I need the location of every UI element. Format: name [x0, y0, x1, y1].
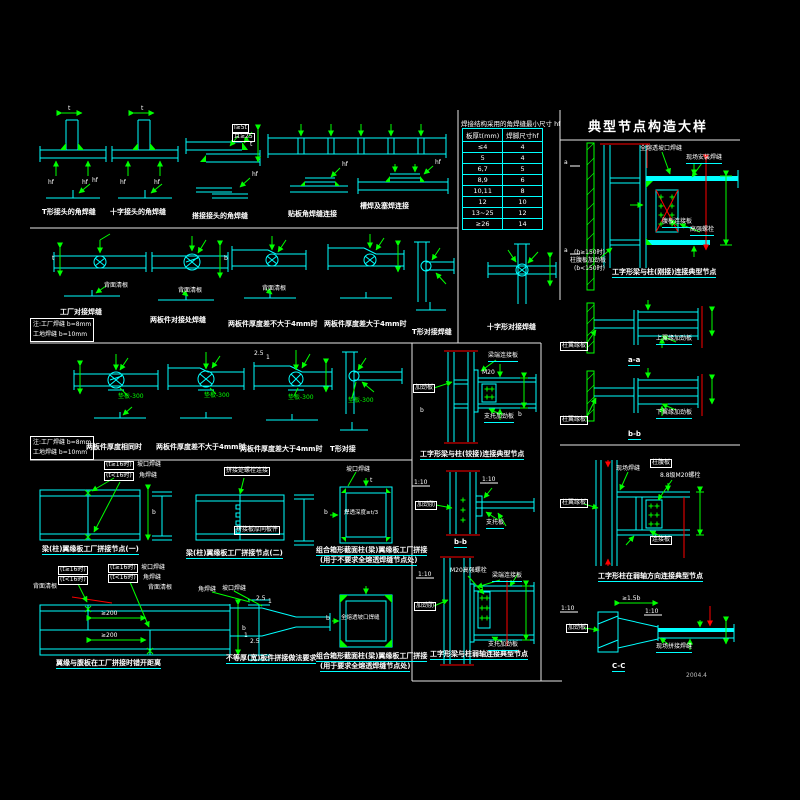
table-cell: 6 [503, 175, 542, 186]
label-backing-bar: 垫板-300 [288, 395, 314, 402]
dim-ge200: ≥200 [101, 610, 118, 617]
caption-equal-thick: 两板件厚度相同时 [86, 444, 142, 451]
label-seat-plate: 支托板 [486, 520, 504, 529]
dim-b: b [324, 509, 328, 516]
dim-hf: hf [92, 177, 99, 184]
label-hs-bolt: 高强螺栓 [690, 227, 714, 236]
label-fillet-weld: 角焊缝 [139, 473, 157, 480]
dim-slope25: 2.5 [254, 350, 264, 357]
dim-b: b [152, 509, 156, 516]
dim-t: t [68, 105, 71, 112]
label-web-plate: 腹板连接板 [662, 219, 692, 228]
section-label-cc: C-C [612, 663, 625, 672]
dim-ge15b: ≥1.5b [622, 595, 641, 602]
table-cell: 6,7 [463, 164, 503, 175]
dim-b: b [518, 411, 522, 418]
caption-plug-weld: 槽焊及塞焊连接 [360, 203, 409, 210]
detail-cross-joint-fillet-weld: t hf hf [112, 105, 178, 198]
table-header-thickness: 板厚t(mm) [463, 129, 503, 142]
section-a-a [586, 300, 712, 353]
label-stiff-rib: 加劲肋 [414, 602, 436, 611]
weld-table-body: ≤44546,758,9610,118121013~2512≥2614 [463, 142, 543, 230]
caption-box-splice-2a: 组合箱形截面柱(梁)翼缘板工厂拼接 [316, 653, 427, 662]
caption-lap-joint: 搭接接头的角焊缝 [192, 213, 248, 220]
caption-step-gt4-b: 两板件厚度差大于4mm时 [240, 446, 322, 453]
detail-t-butt-weld [414, 242, 454, 310]
caption-cross-butt: 十字形对接焊缝 [487, 324, 536, 331]
label-groove-weld: 坡口焊缝 [137, 462, 161, 469]
label-stiffener: 加劲板 [413, 384, 435, 393]
dim-slope110: 1:10 [482, 476, 496, 483]
dim-t: t [250, 141, 253, 148]
label-col-web: 柱腹板 [650, 459, 672, 468]
section-label-bb: b-b [628, 431, 641, 440]
table-cell: 4 [503, 153, 542, 164]
dim-t: t [370, 477, 373, 484]
caption-shop-butt: 工厂对接焊缝 [60, 309, 102, 316]
label-t-ge16: (t≥16时) [104, 461, 134, 470]
label-splice-plate: 拼接板厚同板件 [234, 526, 280, 535]
table-cell: 10,11 [463, 186, 503, 197]
caption-t-butt: T形对接焊缝 [412, 329, 452, 336]
table-cell: 8,9 [463, 175, 503, 186]
table-row: ≥2614 [463, 219, 543, 230]
dim-ge200: ≥200 [101, 632, 118, 639]
dim-slope1: 1 [266, 354, 270, 361]
label-fillet-weld: 角焊缝 [198, 587, 216, 594]
weld-table-title: 焊接结构采用的角焊缝最小尺寸 hf [461, 118, 560, 128]
dim-hf: hf [82, 179, 89, 186]
label-site-weld: 现场安装焊缝 [686, 155, 722, 164]
label-top-stiff: 上翼缘加劲板 [656, 336, 692, 345]
label-lap-length: l≥5t [232, 124, 249, 133]
table-row: 13~2512 [463, 208, 543, 219]
table-row: 8,96 [463, 175, 543, 186]
detail-cross-butt-weld [488, 244, 556, 304]
label-bolt-splice: 拼接处螺栓连接 [224, 467, 270, 476]
caption-step-gt4: 两板件厚度差大于4mm时 [324, 321, 406, 328]
label-penetration: 焊透深度≥t/3 [344, 510, 378, 516]
caption-taper: 不等厚(宽)板件拼接做法要求 [226, 655, 316, 664]
label-t-lt16: (t<16时) [108, 574, 138, 583]
caption-step-le4-b: 两板件厚度差不大于4mm时 [156, 444, 245, 451]
dim-section-a: a [564, 247, 568, 254]
table-row: ≤44 [463, 142, 543, 153]
caption-box-splice-1a: 组合箱形截面柱(梁)翼缘板工厂拼接 [316, 547, 427, 556]
date-stamp: 2004.4 [686, 672, 707, 679]
dim-hf: hf [435, 159, 442, 166]
symbol-i-section-2 [294, 495, 314, 545]
dim-slope25: 2.5 [250, 638, 260, 645]
symbol-i-section-tall [212, 592, 270, 660]
detail-lap-joint-fillet-weld: hf [186, 132, 260, 198]
table-row: 54 [463, 153, 543, 164]
label-bot-stiff: 下翼缘加劲板 [656, 410, 692, 419]
table-cell: 12 [503, 208, 542, 219]
detail-flange-shop-splice-1: b [40, 478, 156, 540]
label-back-gouge: 背面清根 [33, 584, 57, 591]
label-lap-min: 且≥25 [232, 133, 255, 142]
label-full-pen: 全熔透坡口焊缝 [341, 615, 380, 621]
label-m20-bolt: M20高强螺栓 [450, 568, 487, 575]
label-full-pen-weld: 全熔透坡口焊缝 [640, 146, 682, 153]
caption-box-splice-2b: (用于要求全熔透焊缝节点处) [320, 663, 410, 672]
caption-box-splice-1b: (用于不要求全熔透焊缝节点处) [320, 557, 417, 566]
dim-slope110: 1:10 [418, 571, 432, 578]
legend-line-1: 注:工厂焊缝 b=8mm [33, 438, 91, 448]
label-col-flange: 柱翼缘板 [560, 416, 588, 425]
legend-line-1: 注:工厂焊缝 b=8mm [33, 320, 91, 330]
label-back-gouge: 背面清根 [178, 288, 202, 295]
dim-slope1: 1 [244, 632, 248, 639]
dim-slope110: 1:10 [645, 608, 659, 615]
table-cell: 8 [503, 186, 542, 197]
detail-taper-transition: 2.5 1 1 2.5 [230, 591, 330, 645]
label-conn-plate: 连接板 [650, 536, 672, 545]
caption-pinned-joint: 工字形梁与柱(铰接)连接典型节点 [420, 451, 524, 460]
caption-cover-plate: 贴板角焊缝连接 [288, 211, 337, 218]
label-m20-88: 8.8级M20螺栓 [660, 473, 700, 480]
table-row: 10,118 [463, 186, 543, 197]
dim-hf: hf [342, 161, 349, 168]
table-cell: 10 [503, 197, 542, 208]
detail-butt-weld-big-step [328, 234, 404, 298]
label-end-plate: 梁端连接板 [488, 353, 518, 362]
label-groove-weld: 坡口焊缝 [222, 586, 246, 593]
dim-b: b [326, 615, 330, 622]
caption-step-le4: 两板件厚度差不大于4mm时 [228, 321, 317, 328]
dim-m20: M20 [482, 369, 495, 376]
label-backing-bar: 垫板-300 [204, 393, 230, 400]
table-cell: 12 [463, 197, 503, 208]
label-end-plate: 梁端连接板 [492, 573, 522, 582]
detail-plug-weld: hf [358, 159, 448, 194]
caption-t-butt-b: T形对接 [330, 446, 356, 453]
dim-slope1: 1 [268, 598, 272, 605]
label-seat-stiff: 支托加劲板 [488, 642, 518, 651]
caption-weak-axis: 工字形柱在弱轴方向连接典型节点 [598, 573, 703, 582]
label-t-ge16: (t≥16时) [108, 564, 138, 573]
dim-b: b [242, 625, 246, 632]
table-cell: 14 [503, 219, 542, 230]
detail-beam-column-pinned: b b M20 [420, 351, 536, 443]
detail-equal-thickness-weld [74, 354, 158, 418]
label-back-gouge: 背面清根 [104, 283, 128, 290]
table-cell: 5 [503, 164, 542, 175]
label-web-stiff: 柱腹板加劲板 [570, 258, 606, 265]
caption-rigid-joint: 工字形梁与柱(刚接)连接典型节点 [612, 269, 716, 278]
detail-cover-plate-weld: hf [290, 161, 349, 192]
label-t-ge16: (t≥16时) [58, 566, 88, 575]
table-row: 1210 [463, 197, 543, 208]
label-groove-weld: 坡口焊缝 [346, 467, 370, 474]
label-col-flange: 柱翼缘板 [560, 342, 588, 351]
detail-slot-weld-bar: t [250, 124, 446, 162]
detail-small-step-weld-backing [168, 352, 244, 418]
dim-t: t [141, 105, 144, 112]
table-header-size: 焊脚尺寸hf [503, 129, 542, 142]
detail-t-butt-weld-backing [340, 352, 402, 430]
label-t-lt16: (t<16时) [104, 472, 134, 481]
dim-hf: hf [252, 171, 259, 178]
dim-b: b [420, 407, 424, 414]
caption-t-joint: T形接头的角焊缝 [42, 209, 96, 216]
dim-slope110: 1:10 [414, 479, 428, 486]
section-label-bsec: b-b [454, 539, 467, 548]
label-stiffener: 加劲板 [566, 624, 588, 633]
weld-size-table: 板厚t(mm) 焊脚尺寸hf ≤44546,758,9610,118121013… [462, 128, 543, 230]
caption-splice-2: 梁(柱)翼缘板工厂拼接节点(二) [186, 550, 283, 559]
label-t-lt16: (t<16时) [58, 576, 88, 585]
label-stiff-rib: 加劲肋 [415, 501, 437, 510]
caption-weak-axis-mid: 工字形梁与柱弱轴连接典型节点 [430, 651, 528, 660]
table-cell: 4 [503, 142, 542, 153]
dim-section-a: a [564, 159, 568, 166]
label-b-ge150: (b≥150时) [574, 250, 605, 257]
detail-shop-butt-weld: t [52, 234, 146, 296]
table-row: 6,75 [463, 164, 543, 175]
label-fillet-weld: 角焊缝 [143, 575, 161, 582]
table-cell: 5 [463, 153, 503, 164]
dim-hf: hf [120, 179, 127, 186]
label-b-lt150: (b<150时) [574, 266, 605, 273]
section-label-aa: a-a [628, 357, 640, 366]
dim-slope110: 1:10 [561, 605, 575, 612]
cad-sheet: t hf hf hf t hf hf hf t hf hf t b 2.5 1 … [0, 0, 800, 800]
dim-hf: hf [154, 179, 161, 186]
label-backing-bar: 垫板-300 [118, 394, 144, 401]
detail-big-step-weld-backing: 2.5 1 [254, 350, 332, 420]
caption-two-plate-butt: 两板件对接处焊缝 [150, 317, 206, 324]
label-back-gouge: 背面清根 [262, 286, 286, 293]
label-back-gouge: 背面清根 [148, 585, 172, 592]
caption-splice-1: 梁(柱)翼缘板工厂拼接节点(一) [42, 546, 139, 555]
label-site-weld-2: 现场焊缝 [616, 466, 640, 473]
legend-line-2: 工地焊缝 b=10mm [33, 448, 91, 458]
label-seat-stiff: 支托加劲板 [484, 414, 514, 423]
label-backing-bar: 垫板-300 [348, 398, 374, 405]
caption-cross-joint: 十字接头的角焊缝 [110, 209, 166, 216]
dim-slope25: 2.5 [256, 595, 266, 602]
dim-b: b [224, 255, 228, 262]
symbol-i-section [152, 492, 172, 540]
label-site-splice: 现场拼接焊缝 [656, 644, 692, 653]
caption-stagger: 翼缘与腹板在工厂拼接时错开距离 [56, 660, 161, 669]
weld-legend-1: 注:工厂焊缝 b=8mm 工地焊缝 b=10mm [30, 318, 94, 342]
legend-line-2: 工地焊缝 b=10mm [33, 330, 91, 340]
detail-box-section-splice-partial: b t [324, 472, 392, 543]
label-col-flange: 柱翼缘板 [560, 499, 588, 508]
table-cell: ≥26 [463, 219, 503, 230]
section-b-b [586, 368, 712, 421]
detail-t-joint-fillet-weld: t hf hf hf [40, 105, 106, 198]
weld-legend-2: 注:工厂焊缝 b=8mm 工地焊缝 b=10mm [30, 436, 94, 460]
table-cell: ≤4 [463, 142, 503, 153]
sheet-title: 典型节点构造大样 [588, 116, 708, 135]
table-cell: 13~25 [463, 208, 503, 219]
label-groove-weld: 坡口焊缝 [141, 565, 165, 572]
dim-hf: hf [48, 179, 55, 186]
